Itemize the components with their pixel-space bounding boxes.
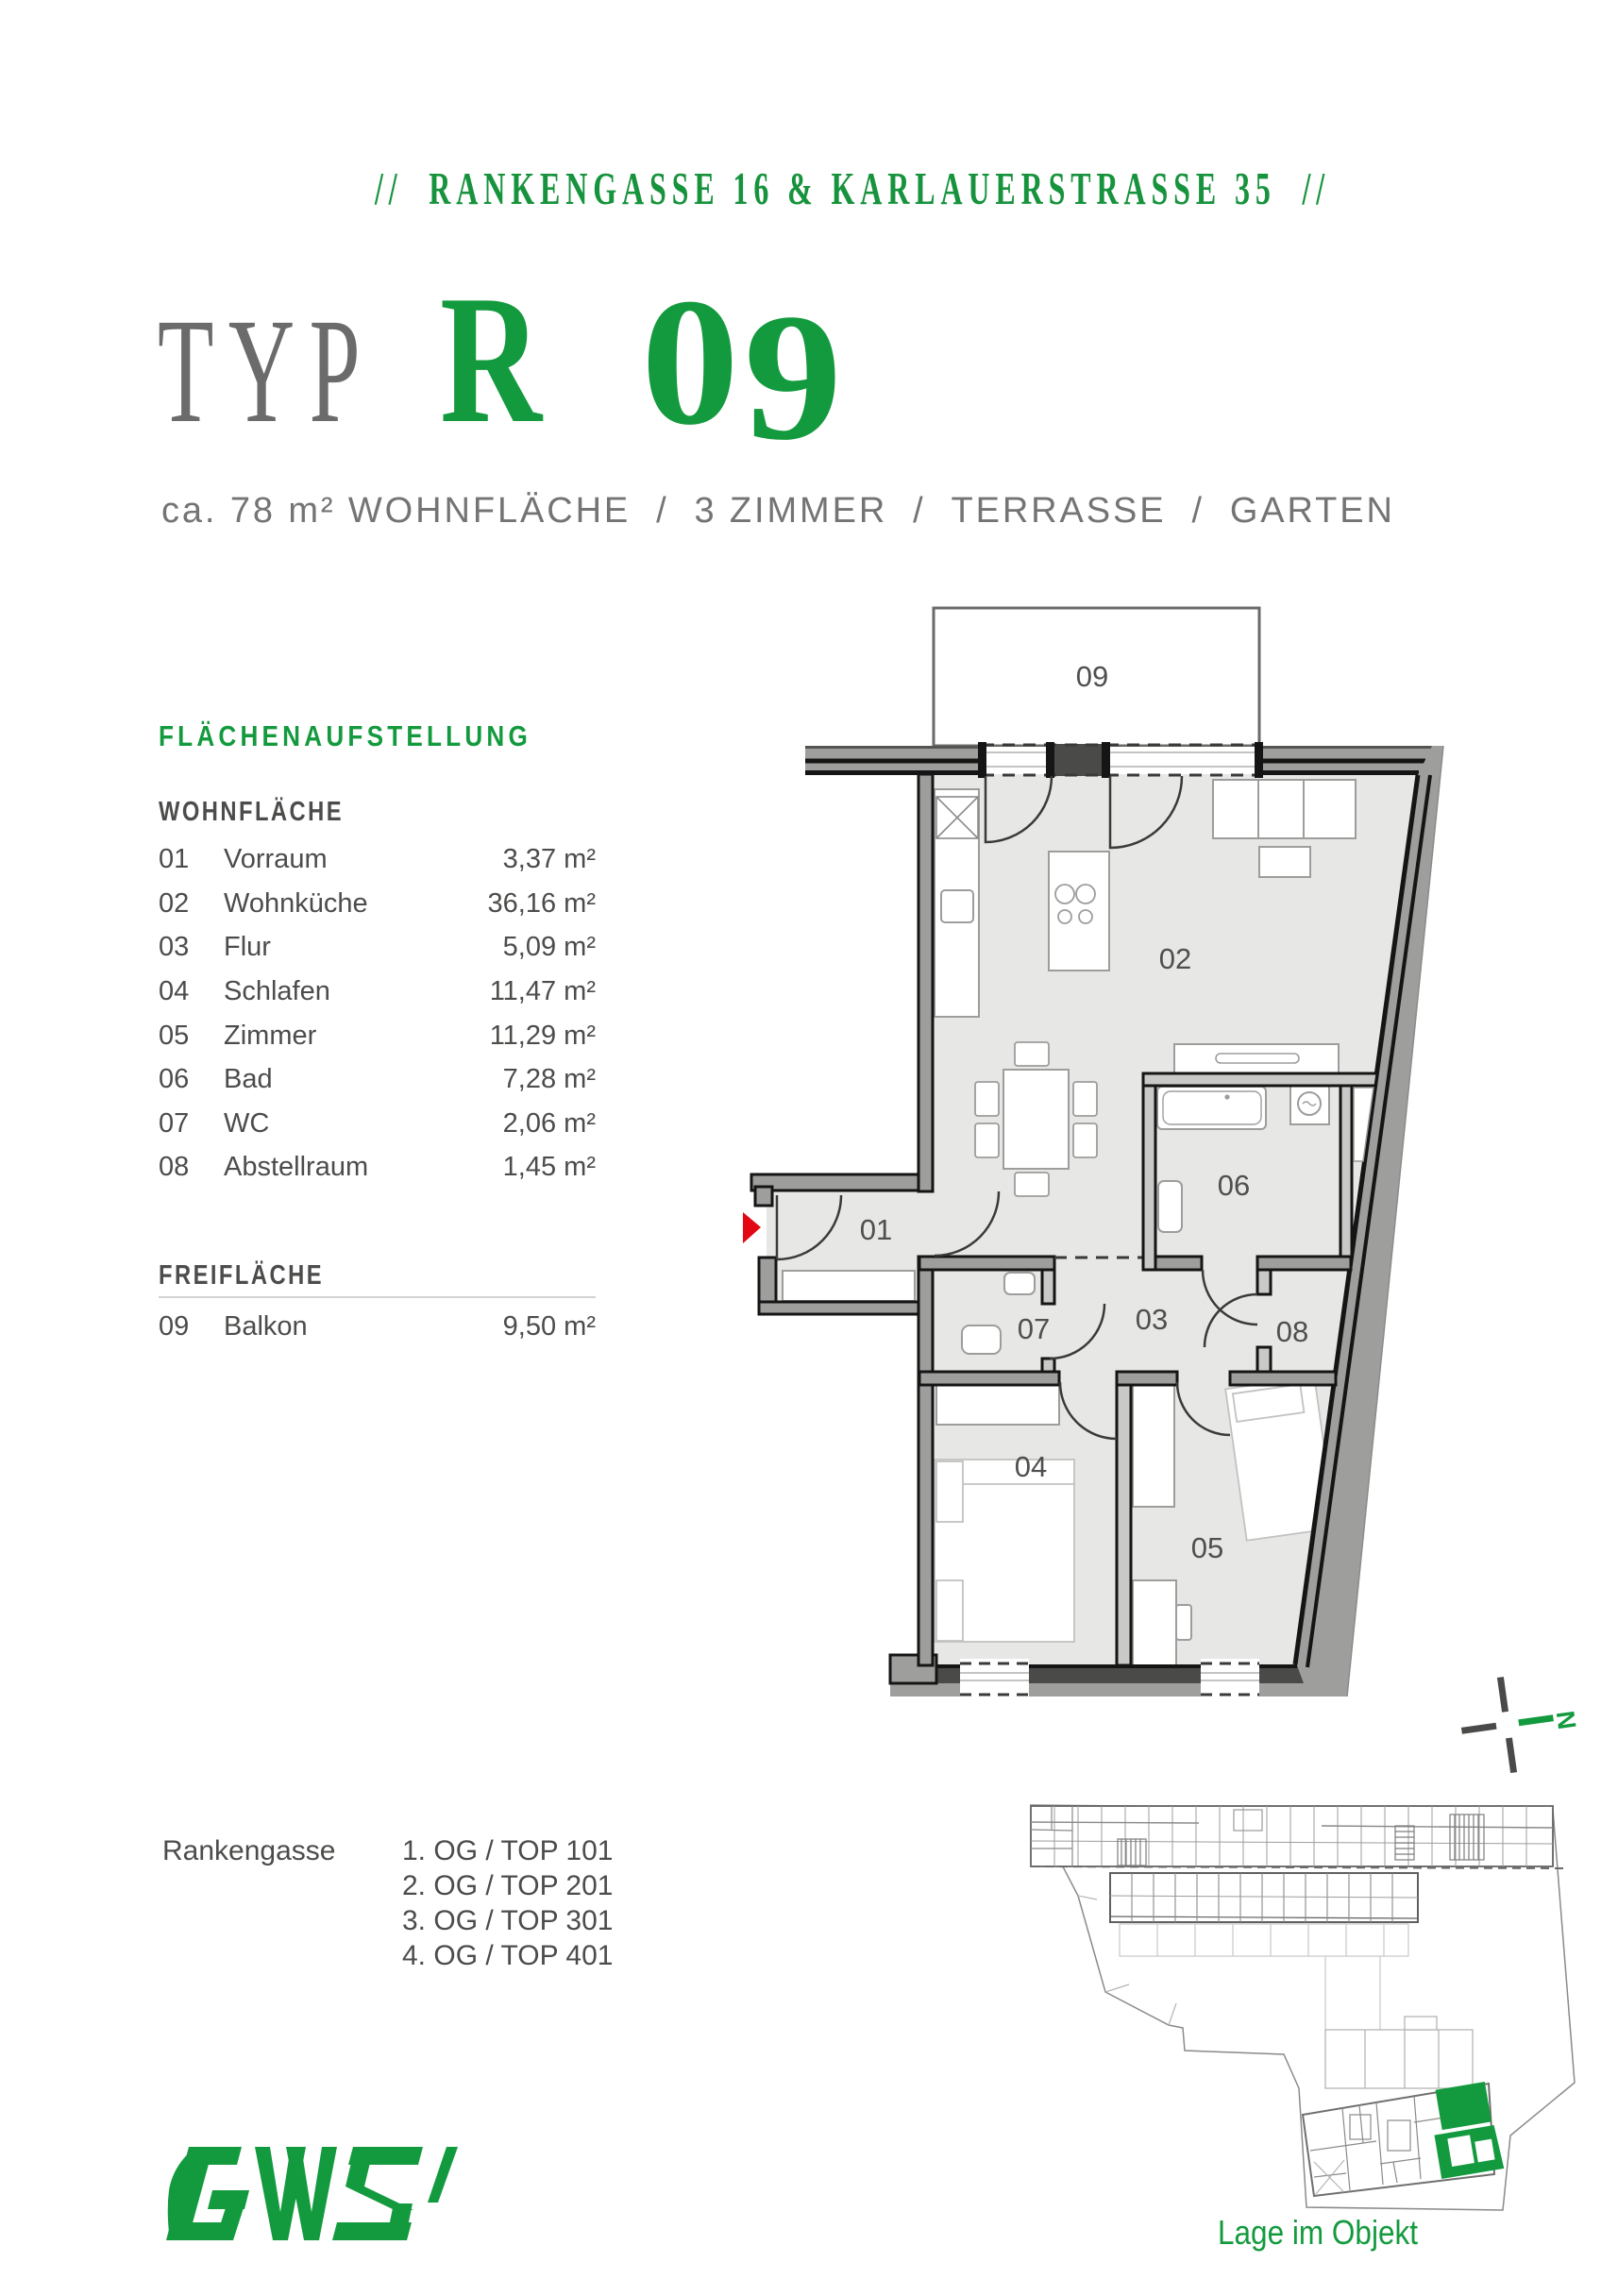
svg-text:2. OG / TOP 201: 2. OG / TOP 201 (402, 1870, 613, 1901)
svg-text:Lage im Objekt: Lage im Objekt (1218, 2213, 1418, 2252)
svg-text:1,45 m²: 1,45 m² (503, 1152, 597, 1182)
svg-text:5,09 m²: 5,09 m² (503, 932, 597, 962)
svg-text:05: 05 (1191, 1531, 1223, 1564)
svg-text:36,16 m²: 36,16 m² (488, 888, 597, 919)
svg-text:WC: WC (224, 1108, 269, 1139)
svg-text:01: 01 (159, 844, 189, 874)
svg-text:03: 03 (159, 932, 189, 962)
svg-text:2,06 m²: 2,06 m² (503, 1108, 597, 1139)
svg-text:09: 09 (159, 1311, 189, 1342)
svg-text:07: 07 (159, 1108, 189, 1139)
svg-text:Abstellraum: Abstellraum (224, 1152, 368, 1182)
svg-text:3. OG / TOP 301: 3. OG / TOP 301 (402, 1905, 613, 1936)
svg-text:Zimmer: Zimmer (224, 1021, 317, 1051)
svg-text:FLÄCHENAUFSTELLUNG: FLÄCHENAUFSTELLUNG (159, 719, 531, 752)
svg-text:05: 05 (159, 1021, 189, 1051)
svg-text:02: 02 (159, 888, 189, 919)
svg-text:03: 03 (1136, 1303, 1168, 1336)
svg-text:FREIFLÄCHE: FREIFLÄCHE (159, 1259, 324, 1291)
svg-text:3,37 m²: 3,37 m² (503, 844, 597, 874)
svg-text:11,29 m²: 11,29 m² (490, 1021, 597, 1051)
svg-text:08: 08 (1276, 1315, 1308, 1348)
svg-text:Bad: Bad (224, 1064, 273, 1094)
svg-text:9: 9 (744, 276, 842, 478)
svg-text:04: 04 (1015, 1450, 1047, 1483)
svg-text:Wohnküche: Wohnküche (224, 888, 368, 919)
svg-text:Rankengasse: Rankengasse (162, 1835, 335, 1866)
svg-text:08: 08 (159, 1152, 189, 1182)
svg-text:WOHNFLÄCHE: WOHNFLÄCHE (159, 796, 344, 827)
svg-text:07: 07 (1018, 1312, 1050, 1345)
svg-text:1. OG / TOP 101: 1. OG / TOP 101 (402, 1835, 613, 1866)
svg-text:Schlafen: Schlafen (224, 976, 330, 1006)
svg-text:04: 04 (159, 976, 189, 1006)
svg-text:11,47 m²: 11,47 m² (490, 976, 597, 1006)
svg-text:Flur: Flur (224, 932, 271, 962)
svg-text:9,50 m²: 9,50 m² (503, 1311, 597, 1342)
svg-text:01: 01 (860, 1213, 892, 1246)
svg-text:7,28 m²: 7,28 m² (503, 1064, 597, 1094)
svg-text:N: N (1551, 1709, 1581, 1730)
svg-text:Vorraum: Vorraum (224, 844, 328, 874)
svg-text:09: 09 (1076, 660, 1108, 693)
svg-text:4. OG / TOP 401: 4. OG / TOP 401 (402, 1940, 613, 1971)
svg-text:06: 06 (159, 1064, 189, 1094)
svg-text:02: 02 (1159, 942, 1191, 975)
svg-text:Balkon: Balkon (224, 1311, 308, 1342)
svg-text:06: 06 (1218, 1169, 1250, 1202)
